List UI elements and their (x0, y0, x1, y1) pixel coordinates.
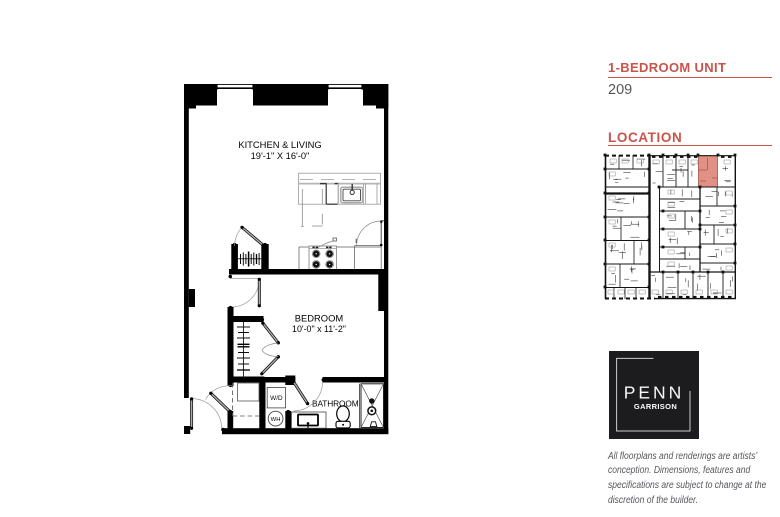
svg-text:KITCHEN & LIVING: KITCHEN & LIVING (238, 139, 321, 150)
svg-text:GARRISON: GARRISON (634, 402, 677, 411)
svg-text:BEDROOM: BEDROOM (295, 312, 344, 323)
svg-text:WH: WH (271, 417, 281, 423)
svg-text:10'-0" x 11'-2": 10'-0" x 11'-2" (292, 324, 346, 334)
svg-text:W/D: W/D (270, 395, 283, 402)
svg-text:19'-1" X 16'-0": 19'-1" X 16'-0" (251, 151, 310, 161)
svg-text:PENN: PENN (624, 382, 685, 402)
svg-text:BATHROOM: BATHROOM (312, 398, 359, 408)
